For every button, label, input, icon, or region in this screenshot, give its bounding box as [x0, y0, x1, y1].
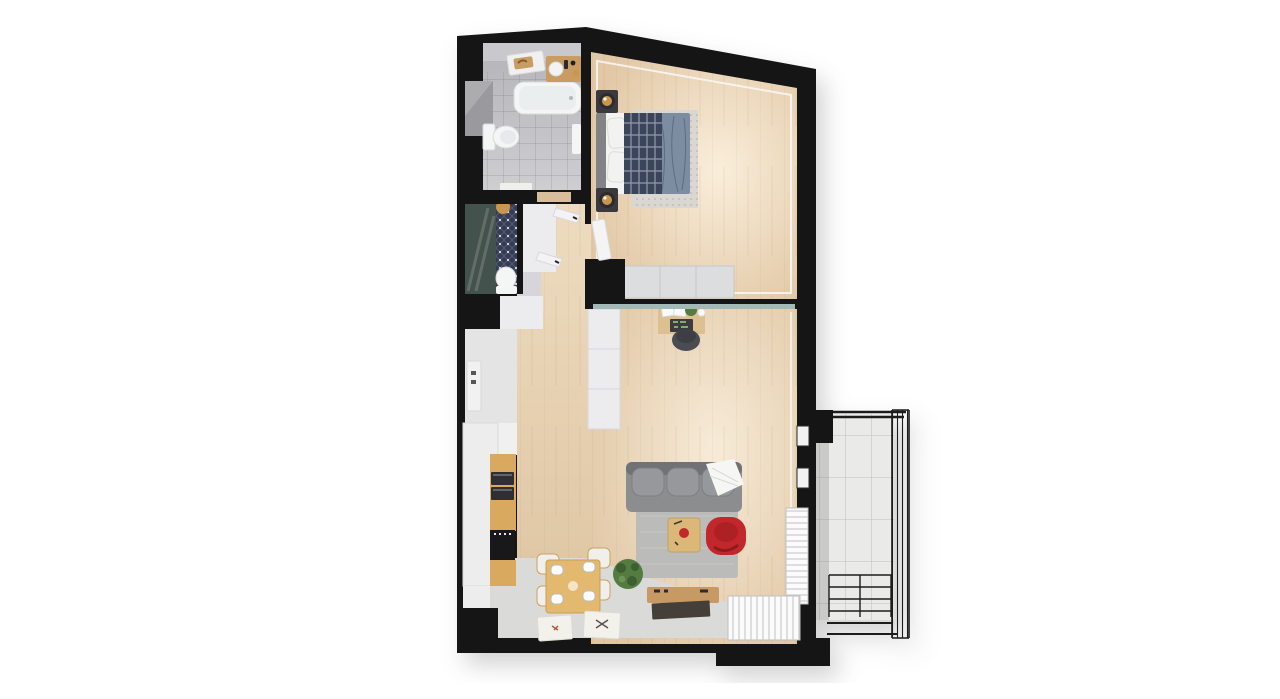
wall-window-2: [797, 468, 809, 488]
desk-cup: [698, 309, 705, 316]
storage-step-large: [500, 296, 543, 329]
toiletry-bottle: [571, 61, 576, 66]
wall-hall-bedroom: [585, 194, 591, 224]
sofa-cushion-2: [667, 468, 699, 496]
table-centerpiece: [568, 581, 578, 591]
desk-chair-seat: [676, 329, 696, 343]
apartment: [457, 27, 909, 666]
floorplan-canvas: [40, 16, 1280, 683]
kitchen-lower-cabinet: [490, 560, 516, 586]
balcony-railing-right: [892, 410, 909, 638]
wall-wc-bottom: [463, 294, 500, 302]
towel-rack: [572, 124, 581, 154]
toiletry-jar: [573, 70, 579, 76]
light-switch-2: [471, 380, 476, 384]
wall-shelf-tray: [507, 51, 545, 76]
light-switch-1: [471, 371, 476, 375]
wall-window-1: [797, 426, 809, 446]
balcony: [816, 410, 909, 638]
kitchen-end-cabinet: [463, 586, 490, 608]
placemat-right: [583, 611, 620, 639]
bathroom-toilet-seat: [500, 130, 516, 144]
living-wardrobe: [588, 309, 620, 429]
microwave: [491, 487, 514, 500]
sink-basin: [549, 62, 563, 76]
wall-bath-bedroom: [581, 30, 591, 194]
oven: [491, 472, 514, 485]
nightstand-lamp-top: [596, 90, 618, 113]
sofa-cushion-1: [632, 468, 664, 496]
balcony-wall-shadow: [816, 414, 829, 620]
bedroom-wardrobe: [624, 266, 734, 298]
balcony-bottom-frame: [827, 623, 897, 634]
bathtub-drain: [569, 96, 573, 100]
nightstand-lamp-bottom: [596, 188, 618, 212]
entry-door: [467, 361, 481, 411]
wc-shower-room: [465, 200, 517, 294]
window-bottom-blinds: [728, 596, 800, 640]
window-right-blinds: [786, 508, 808, 604]
wc-toilet-tank: [496, 286, 517, 294]
floor-plant: [613, 559, 643, 589]
wall-wc-hall: [517, 202, 523, 294]
plate-3: [551, 594, 563, 604]
plaid-throw: [624, 113, 662, 194]
wc-toilet-bowl: [496, 267, 516, 289]
floorplan-render: [40, 16, 1280, 683]
coffee-table: [668, 518, 700, 552]
bathtub-inner: [519, 86, 576, 110]
sink-tap: [564, 60, 568, 69]
red-armchair: [706, 517, 746, 555]
tv-panel: [652, 600, 711, 619]
double-bed: [596, 112, 690, 194]
plate-2: [583, 562, 595, 572]
black-stove-cabinet: [490, 530, 515, 560]
plate-1: [551, 565, 563, 575]
sofa: [626, 459, 744, 512]
glass-partition-strip: [593, 304, 795, 309]
tv-console: [647, 587, 719, 620]
bathroom-door-threshold: [537, 192, 571, 202]
table-bowl: [679, 528, 689, 538]
plate-4: [583, 591, 595, 601]
